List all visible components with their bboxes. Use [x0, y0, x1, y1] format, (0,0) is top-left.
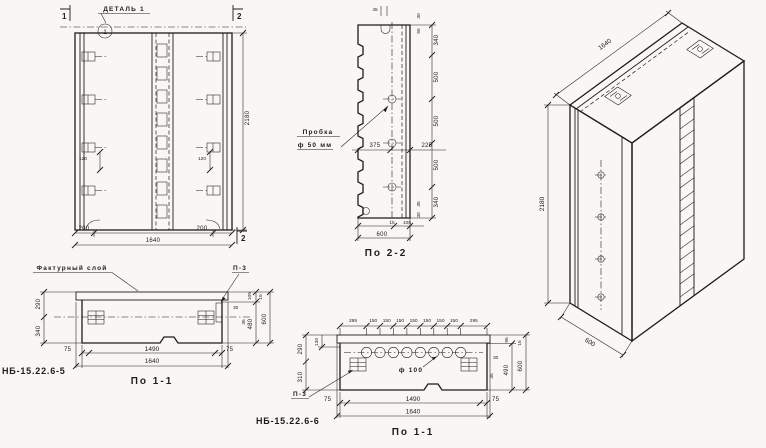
dim-label-30: 30: [233, 305, 239, 311]
hole-diameter-label: ф 100: [399, 367, 423, 374]
p3-liner-strip: [216, 303, 222, 322]
dim-row-200: [75, 230, 232, 237]
panel-outline: [75, 33, 232, 230]
section-2-2-view: Пробка ф 50 мм 375 225 45 30 55 340 500 …: [297, 6, 446, 259]
iso-edge-returns: [575, 108, 622, 335]
p3-leader-arrow: [221, 297, 226, 302]
section-body-outline: [82, 300, 222, 343]
dim-label-35-bottom: 35: [416, 201, 422, 207]
bottom-dim-lines: [337, 343, 490, 418]
dim-label-105: 105: [403, 220, 411, 226]
dim-label-600: 600: [262, 313, 268, 324]
dim-label-200-left: 200: [79, 226, 90, 232]
facing-layer-label: Фактурный слой: [37, 264, 108, 272]
top-chain-label: 150: [396, 318, 404, 324]
anchor-box-left: [88, 311, 104, 324]
height-chain-line: [410, 25, 436, 218]
dim-label-1640: 1640: [406, 409, 421, 416]
dim-label-375: 375: [370, 143, 381, 149]
dim-label-45: 45: [372, 7, 378, 13]
p3-label: П-3: [233, 265, 247, 272]
section-1-1-b-view: 295 150 150 150 150 150 150 150 295: [256, 318, 530, 438]
dim-label-15: 15: [389, 220, 395, 226]
center-rib-lines: [152, 33, 173, 230]
dim-label-120-right: 120: [198, 156, 206, 162]
iso-dim-label-2180: 2180: [539, 196, 546, 211]
facing-leader: [33, 273, 138, 292]
iso-top-groove-dashed: [580, 31, 690, 112]
p3-leader: [221, 273, 249, 302]
anchor-row: [82, 143, 220, 152]
edge-strip-lines: [80, 33, 227, 230]
cut-2-bottom-label: 2: [241, 234, 246, 243]
dim-label-310: 310: [298, 371, 304, 382]
dim-label-95: 95: [504, 337, 510, 343]
iso-big-face: [632, 61, 744, 341]
anchor-box-right: [198, 311, 214, 324]
dim-label-105: 105: [247, 292, 253, 300]
detail-leader: [98, 14, 150, 24]
anchor-box-right: [461, 358, 477, 371]
dim-label-55: 55: [416, 28, 422, 34]
dim-label-35: 35: [241, 319, 247, 325]
iso-key-strip: [680, 98, 694, 306]
center-rib-dashed: [156, 33, 169, 230]
section-1-1-a-title: По 1-1: [131, 376, 174, 387]
dim-label-15: 15: [517, 340, 523, 346]
chain-label: 500: [434, 71, 440, 82]
iso-dim-label-600: 600: [583, 337, 596, 349]
drawing-sheet: 120 120 ДЕТАЛЬ 1 1 1 2 2 200 200 1640 21…: [0, 0, 766, 448]
chain-label: 500: [434, 159, 440, 170]
iso-dim-1640: [554, 11, 682, 105]
iso-keys: [680, 106, 694, 297]
anchor-row: [82, 186, 220, 195]
dim-label-1490: 1490: [145, 346, 160, 353]
top-chain-label: 295: [349, 318, 357, 324]
isometric-view: 1640 2180 600: [539, 10, 744, 358]
front-view: 120 120 ДЕТАЛЬ 1 1 1 2 2 200 200 1640 21…: [60, 5, 251, 248]
dim-label-75-left: 75: [324, 397, 332, 403]
chain-label: 500: [434, 115, 440, 126]
cut-1-label: 1: [62, 12, 67, 21]
anchor-box-left: [350, 358, 366, 371]
top-chain-label: 150: [450, 318, 458, 324]
technical-drawing-canvas: 120 120 ДЕТАЛЬ 1 1 1 2 2 200 200 1640 21…: [0, 0, 766, 448]
chain-label: 340: [434, 34, 440, 45]
top-chain-label: 150: [436, 318, 444, 324]
dim-label-120-left: 120: [79, 156, 87, 162]
section-1-1-a-mark: НБ-15.22.6-5: [2, 366, 66, 376]
dim-label-480: 480: [248, 318, 254, 329]
detail-circle-number: 1: [103, 29, 107, 36]
dim-label-75-right: 75: [492, 397, 500, 403]
section-1-1-b-title: По 1-1: [392, 427, 435, 438]
dim-line-2180: [232, 33, 247, 230]
top-chain-label: 150: [423, 318, 431, 324]
dim-label-600: 600: [518, 360, 524, 371]
cut-2-top-label: 2: [237, 12, 242, 21]
dim-label-490: 490: [504, 364, 510, 375]
chain-label: 340: [434, 196, 440, 207]
dim-label-2180: 2180: [245, 110, 251, 125]
top-chain-label: 150: [369, 318, 377, 324]
anchor-row: [82, 95, 220, 104]
dim-label-75-left: 75: [64, 347, 72, 353]
iso-dim-label-1640: 1640: [597, 37, 613, 51]
facing-layer: [337, 335, 490, 343]
dim-label-75-right: 75: [226, 347, 234, 353]
facing-layer: [76, 292, 228, 300]
lifting-loop-section: [381, 25, 390, 34]
dim-label-1640: 1640: [146, 238, 161, 244]
iso-dim-2180: [544, 105, 570, 303]
dim-label-600: 600: [377, 232, 388, 238]
plug-label-line1: Пробка: [303, 128, 334, 136]
section-1-1-a-view: Фактурный слой П-3 290 340 105 15 30 35 …: [2, 264, 274, 387]
dim-label-1640: 1640: [145, 358, 160, 365]
dim-label-30-bottom: 30: [416, 212, 422, 218]
top-chain-label: 150: [383, 318, 391, 324]
dim-label-30-top: 30: [416, 13, 422, 19]
dim-label-340: 340: [36, 325, 42, 336]
dim-label-30: 30: [493, 355, 499, 361]
top-chain-extensions: [340, 328, 487, 335]
iso-dim-600: [560, 303, 632, 357]
top-chain-label: 150: [410, 318, 418, 324]
center-rib-keys: [157, 44, 167, 218]
anchor-row: [82, 52, 220, 61]
dim-label-200-right: 200: [197, 226, 208, 232]
section-1-1-b-mark: НБ-15.22.6-6: [256, 416, 320, 426]
plug-label-line2: ф 50 мм: [298, 142, 333, 149]
p3-label: П-3: [293, 391, 307, 398]
dim-label-290: 290: [36, 298, 42, 309]
side-anchor-keys: [82, 52, 220, 195]
top-chain-label: 295: [470, 318, 478, 324]
section-2-2-title: По 2-2: [365, 248, 408, 259]
dim-label-1490: 1490: [406, 396, 421, 403]
detail-label: ДЕТАЛЬ 1: [103, 6, 145, 13]
dim-label-290: 290: [298, 343, 304, 354]
dim-label-15: 15: [258, 294, 264, 300]
dim-label-130: 130: [314, 338, 320, 346]
